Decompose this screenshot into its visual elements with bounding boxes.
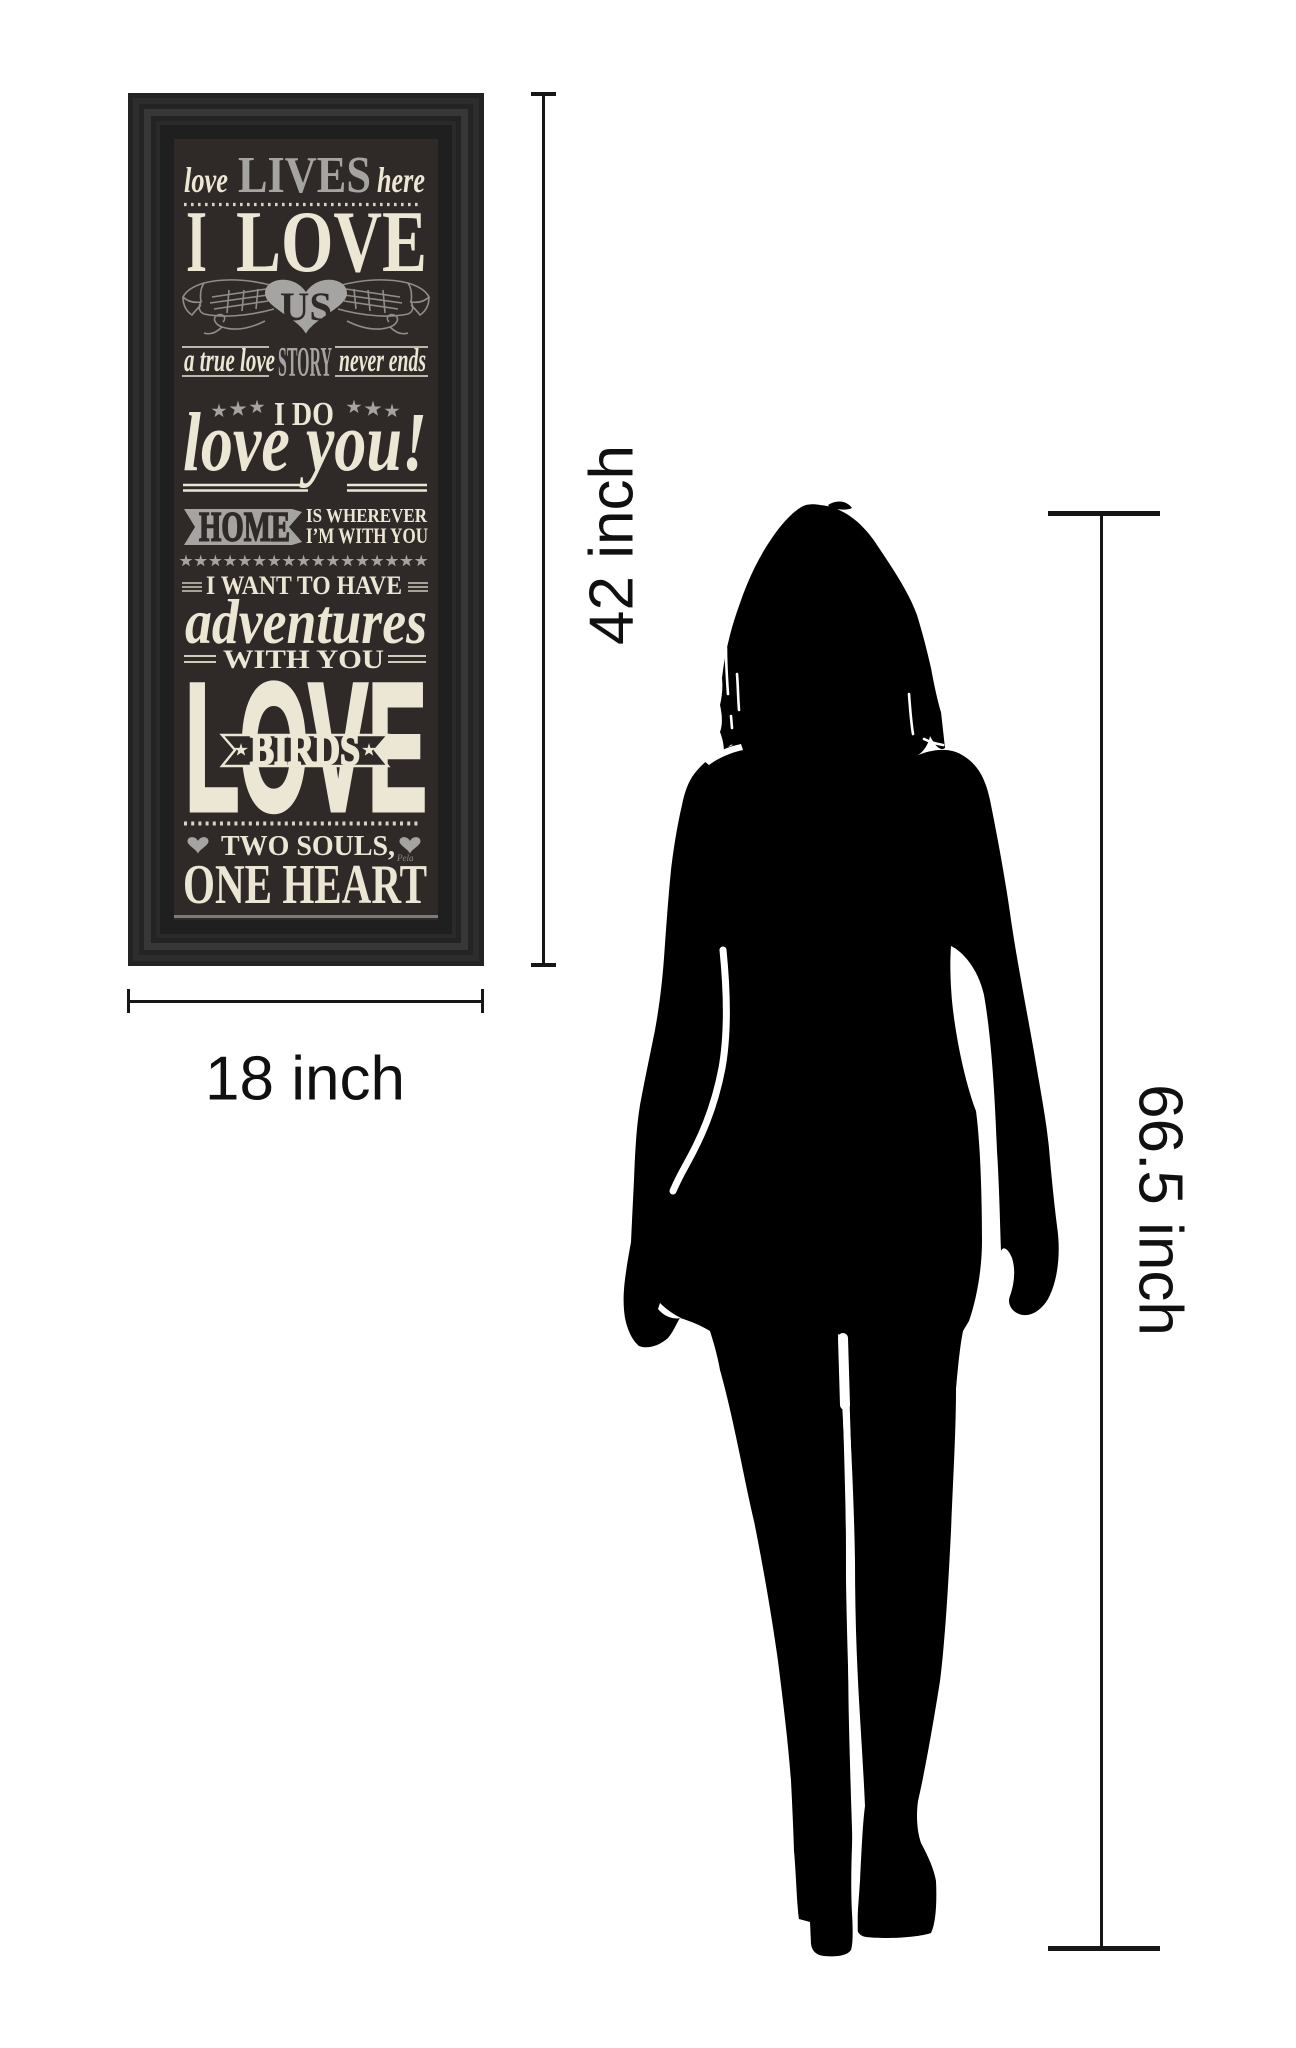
- svg-text:a true love: a true love: [184, 343, 275, 379]
- svg-text:US: US: [280, 284, 332, 329]
- svg-text:STORY: STORY: [278, 340, 332, 386]
- svg-text:LOVE: LOVE: [236, 194, 427, 291]
- svg-text:I: I: [186, 194, 207, 291]
- svg-text:love you!: love you!: [183, 396, 427, 489]
- svg-text:HOME: HOME: [199, 505, 290, 551]
- svg-text:never ends: never ends: [339, 343, 426, 379]
- svg-text:ONE HEART: ONE HEART: [183, 854, 427, 916]
- svg-text:BIRDS: BIRDS: [250, 725, 360, 774]
- svg-text:I’M WITH YOU: I’M WITH YOU: [306, 523, 428, 548]
